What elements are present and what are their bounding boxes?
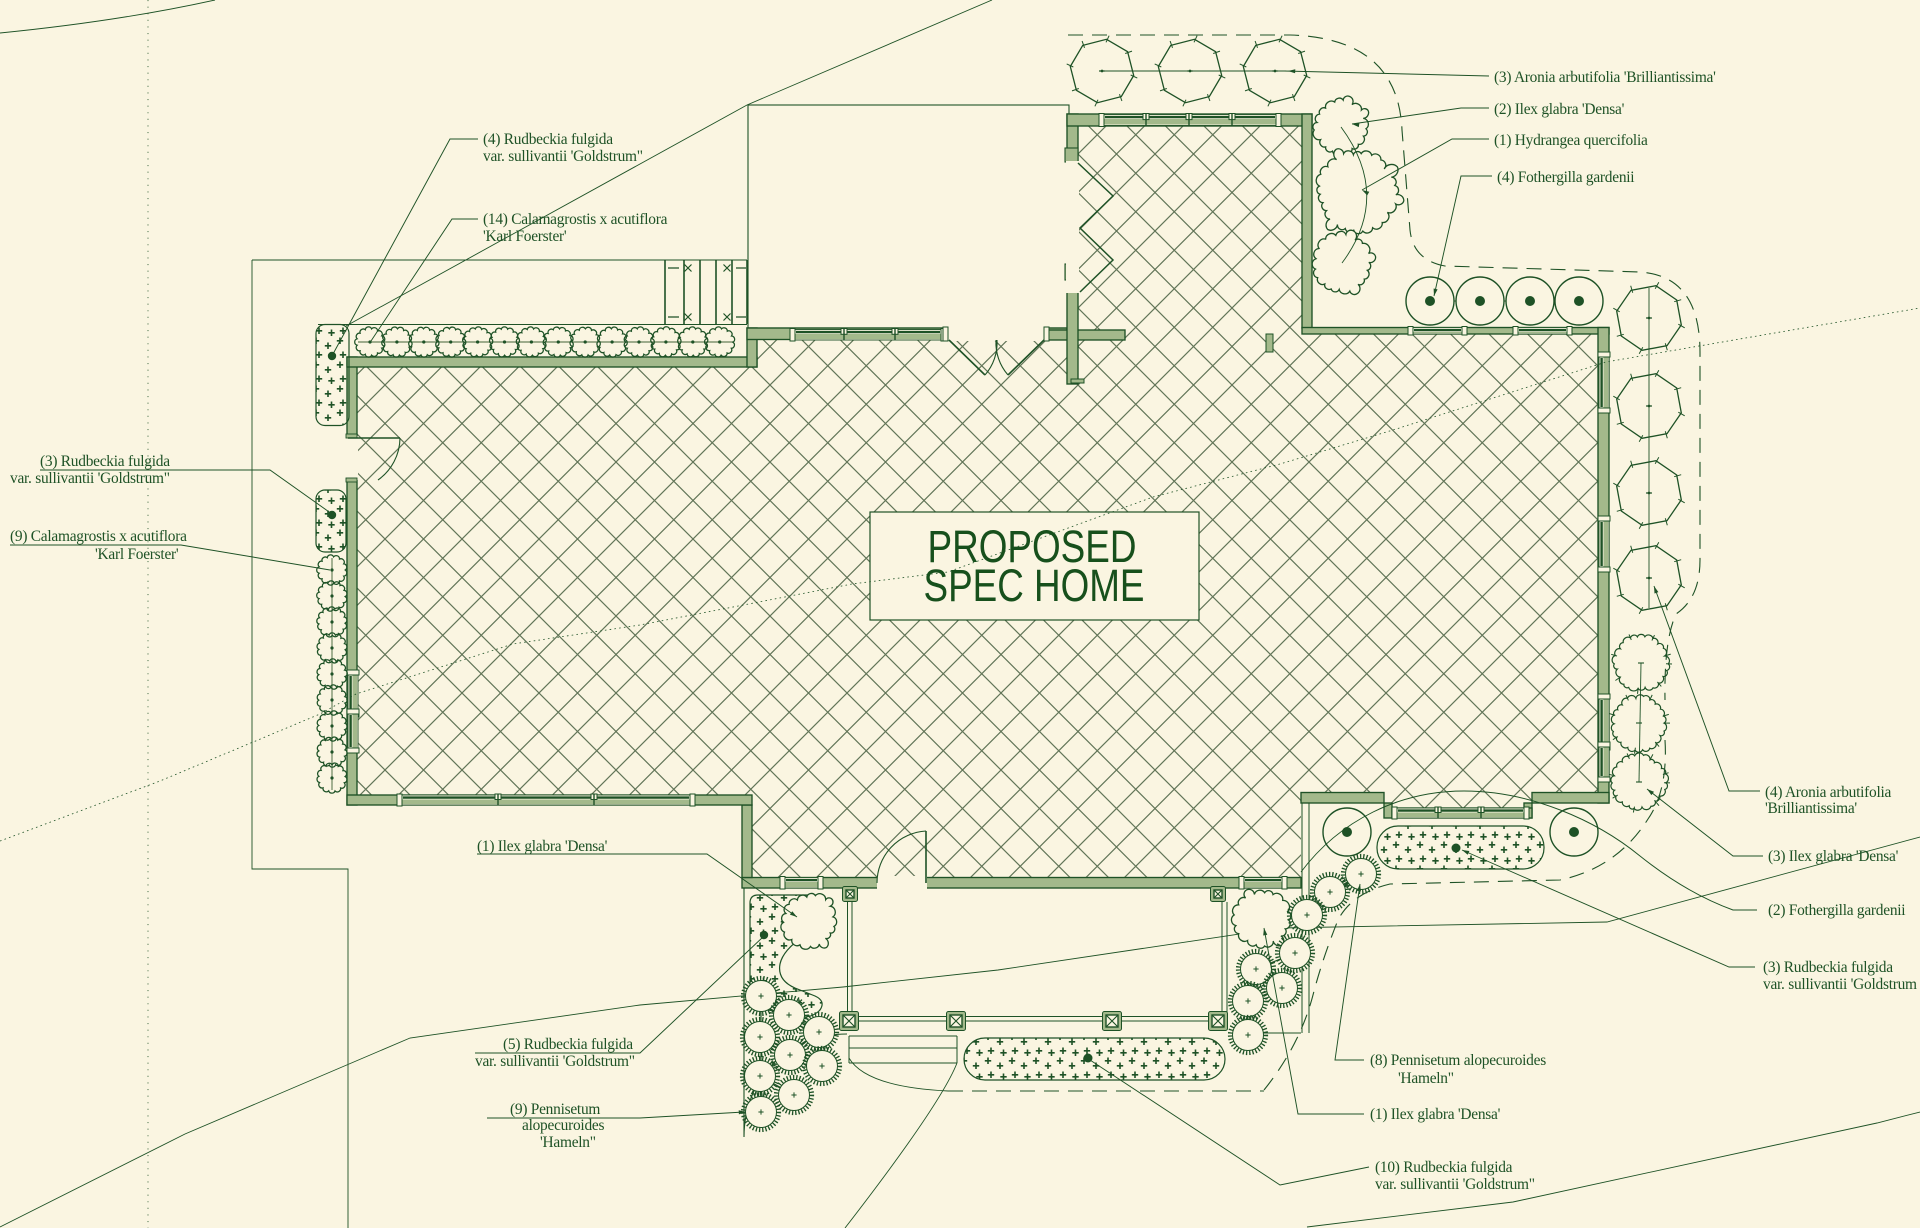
svg-text:(1) Ilex glabra 'Densa': (1) Ilex glabra 'Densa' [1370, 1106, 1501, 1123]
svg-text:var. sullivantii 'Goldstrum: var. sullivantii 'Goldstrum [1763, 976, 1917, 993]
svg-text:(4) Rudbeckia fulgida: (4) Rudbeckia fulgida [483, 131, 613, 148]
svg-text:var. sullivantii 'Goldstrum": var. sullivantii 'Goldstrum" [10, 470, 170, 487]
svg-text:var. sullivantii 'Goldstrum": var. sullivantii 'Goldstrum" [483, 148, 643, 165]
svg-text:(3) Ilex glabra 'Densa': (3) Ilex glabra 'Densa' [1768, 848, 1899, 865]
svg-text:(10) Rudbeckia fulgida: (10) Rudbeckia fulgida [1375, 1159, 1513, 1176]
svg-text:(3) Rudbeckia fulgida: (3) Rudbeckia fulgida [1763, 959, 1893, 976]
svg-text:(9) Calamagrostis x acutiflora: (9) Calamagrostis x acutiflora [10, 528, 187, 545]
svg-text:(8) Pennisetum alopecuroides: (8) Pennisetum alopecuroides [1370, 1052, 1546, 1069]
svg-text:'Karl Foerster': 'Karl Foerster' [95, 546, 179, 563]
svg-text:SPEC HOME: SPEC HOME [924, 560, 1145, 611]
svg-text:(3) Rudbeckia fulgida: (3) Rudbeckia fulgida [40, 453, 170, 470]
svg-text:(14) Calamagrostis x acutiflor: (14) Calamagrostis x acutiflora [483, 211, 668, 228]
svg-text:(3) Aronia arbutifolia 'Brilli: (3) Aronia arbutifolia 'Brilliantissima' [1494, 69, 1716, 86]
svg-text:var. sullivantii 'Goldstrum": var. sullivantii 'Goldstrum" [1375, 1176, 1535, 1193]
svg-text:'Hameln": 'Hameln" [1398, 1070, 1454, 1087]
svg-text:(9) Pennisetum: (9) Pennisetum [510, 1101, 600, 1118]
svg-text:(1) Ilex glabra 'Densa': (1) Ilex glabra 'Densa' [477, 838, 608, 855]
svg-text:var. sullivantii 'Goldstrum": var. sullivantii 'Goldstrum" [475, 1053, 635, 1070]
svg-text:(4) Aronia arbutifolia: (4) Aronia arbutifolia [1765, 784, 1892, 801]
svg-text:(5) Rudbeckia fulgida: (5) Rudbeckia fulgida [503, 1036, 633, 1053]
svg-text:alopecuroides: alopecuroides [522, 1117, 604, 1134]
svg-text:(4) Fothergilla gardenii: (4) Fothergilla gardenii [1497, 169, 1634, 186]
svg-text:'Brilliantissima': 'Brilliantissima' [1765, 800, 1857, 817]
svg-text:(2) Ilex glabra 'Densa': (2) Ilex glabra 'Densa' [1494, 101, 1625, 118]
svg-text:'Hameln": 'Hameln" [540, 1134, 596, 1151]
svg-text:(2) Fothergilla gardenii: (2) Fothergilla gardenii [1768, 902, 1905, 919]
svg-text:'Karl Foerster': 'Karl Foerster' [483, 228, 567, 245]
svg-text:(1) Hydrangea quercifolia: (1) Hydrangea quercifolia [1494, 132, 1648, 149]
